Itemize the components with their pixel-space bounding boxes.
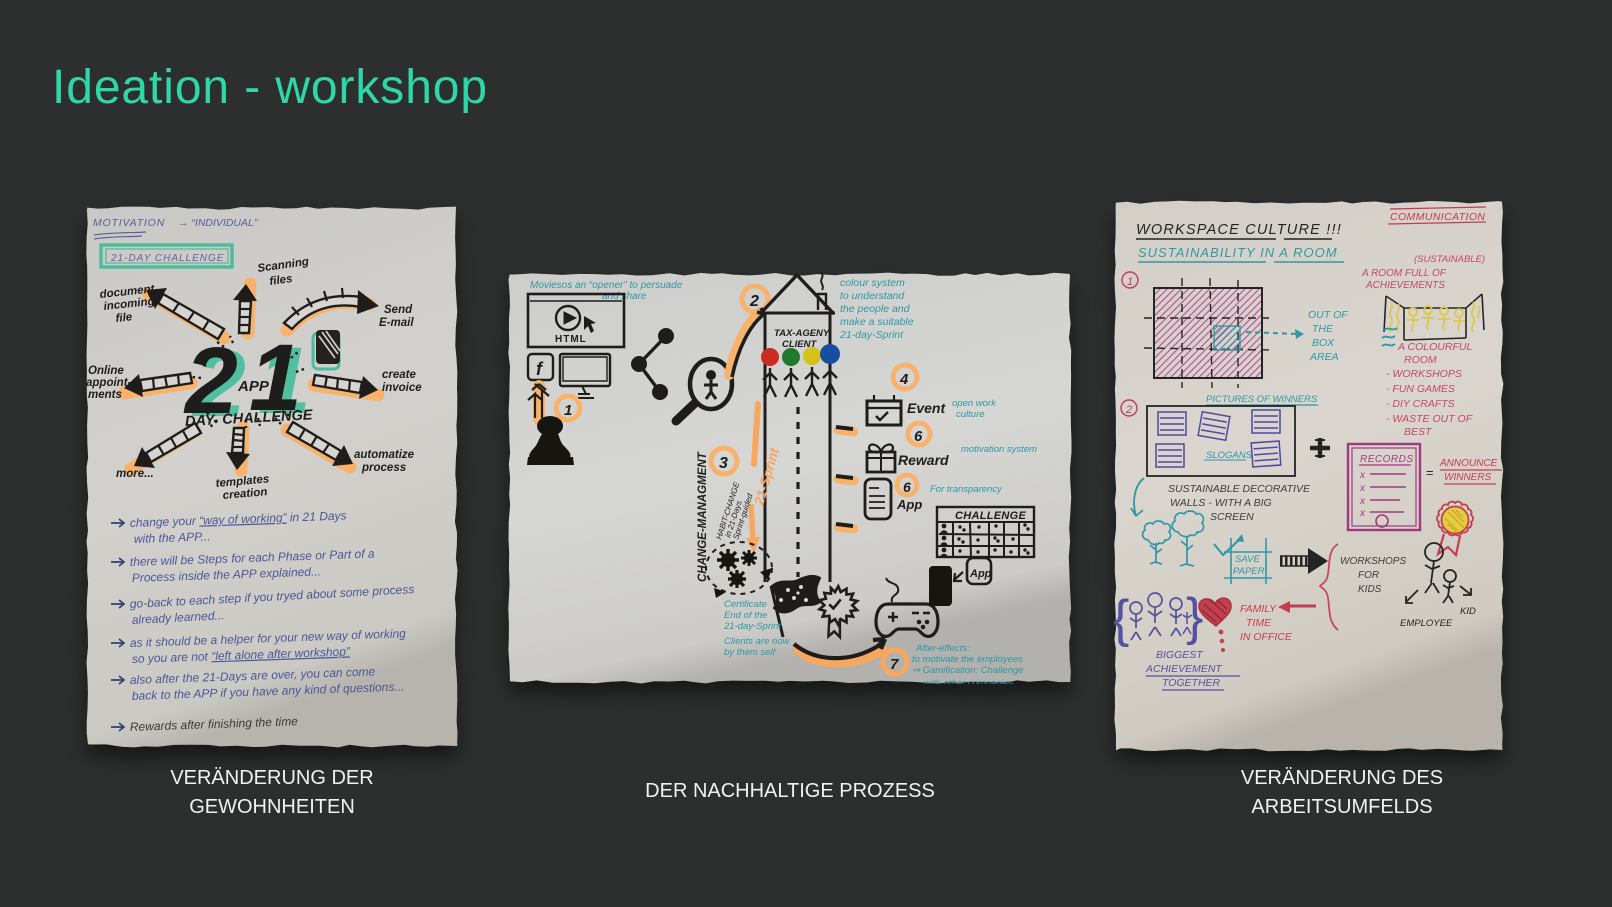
svg-text:4: 4 <box>899 371 909 388</box>
svg-text:App: App <box>896 497 922 512</box>
svg-text:Certificate: Certificate <box>724 599 767 610</box>
svg-text:For transparency: For transparency <box>930 484 1003 495</box>
svg-text:TAX-AGENY: TAX-AGENY <box>774 328 831 339</box>
svg-text:ROOM: ROOM <box>1404 354 1437 366</box>
svg-text:x: x <box>1359 508 1366 519</box>
svg-text:SCREEN: SCREEN <box>1210 511 1254 523</box>
svg-text:COMMUNICATION: COMMUNICATION <box>1390 211 1485 223</box>
svg-text:TIME: TIME <box>1246 617 1272 629</box>
svg-text:motivation system: motivation system <box>961 444 1037 455</box>
svg-text:1: 1 <box>564 402 572 419</box>
svg-text:Online: Online <box>88 365 124 377</box>
svg-text:culture: culture <box>956 409 985 420</box>
svg-text:process: process <box>361 462 406 474</box>
svg-text:file: file <box>115 311 133 325</box>
svg-text:OUT OF: OUT OF <box>1308 309 1348 321</box>
svg-text:ACHIEVEMENTS: ACHIEVEMENTS <box>1365 280 1445 291</box>
svg-text:IN OFFICE: IN OFFICE <box>1240 631 1293 643</box>
svg-text:6: 6 <box>903 479 911 495</box>
svg-text:21-day-Sprint: 21-day-Sprint <box>723 621 781 632</box>
svg-text:more...: more... <box>116 468 154 480</box>
svg-text:Event: Event <box>907 400 946 416</box>
svg-text:HTML: HTML <box>555 334 587 345</box>
svg-text:21-DAY CHALLENGE: 21-DAY CHALLENGE <box>110 253 224 264</box>
svg-text:SUSTAINABILITY IN A ROOM: SUSTAINABILITY IN A ROOM <box>1138 245 1338 260</box>
svg-text:WORKSHOPS: WORKSHOPS <box>1340 556 1406 567</box>
svg-text:Send: Send <box>384 304 413 316</box>
svg-text:21-day-Sprint: 21-day-Sprint <box>839 329 904 341</box>
svg-text:automatize: automatize <box>354 449 415 461</box>
svg-text:TOGETHER: TOGETHER <box>1162 677 1221 689</box>
svg-text:3: 3 <box>719 455 728 472</box>
svg-text:ACHIEVEMENT: ACHIEVEMENT <box>1145 663 1223 675</box>
svg-text:SAVE: SAVE <box>1235 554 1260 565</box>
svg-text:6: 6 <box>914 428 923 445</box>
svg-text:=: = <box>1426 465 1434 480</box>
svg-text:E-mail: E-mail <box>379 317 414 329</box>
svg-text:with the APP...: with the APP... <box>134 529 211 546</box>
svg-text:EMPLOYEE: EMPLOYEE <box>1400 618 1453 629</box>
svg-text:invoice: invoice <box>382 382 422 394</box>
svg-text:A COLOURFUL: A COLOURFUL <box>1397 341 1472 353</box>
svg-text:x: x <box>1359 496 1366 507</box>
svg-text:- FUN GAMES: - FUN GAMES <box>1386 383 1455 395</box>
svg-text:PICTURES OF WINNERS: PICTURES OF WINNERS <box>1206 394 1318 405</box>
svg-text:A ROOM FULL OF: A ROOM FULL OF <box>1361 268 1447 279</box>
svg-text:AREA: AREA <box>1309 351 1339 363</box>
svg-text:by them self: by them self <box>724 647 777 658</box>
svg-text:make a suitable: make a suitable <box>840 316 914 328</box>
svg-text:FAMILY: FAMILY <box>1240 603 1277 615</box>
svg-text:{: { <box>1114 590 1129 648</box>
svg-text:- WASTE OUT OF: - WASTE OUT OF <box>1386 413 1473 425</box>
svg-text:WINNERS: WINNERS <box>1444 472 1492 483</box>
svg-text:2: 2 <box>749 293 759 310</box>
svg-text:CHALLENGE: CHALLENGE <box>955 510 1027 522</box>
svg-text:Reward: Reward <box>898 452 949 468</box>
svg-text:Clients are now: Clients are now <box>724 636 791 647</box>
svg-text:RECORDS: RECORDS <box>1360 454 1414 465</box>
svg-text:(SUSTAINABLE): (SUSTAINABLE) <box>1414 254 1485 265</box>
svg-text:- WORKSHOPS: - WORKSHOPS <box>1386 368 1462 380</box>
svg-text:CHANGE-MANAGMENT: CHANGE-MANAGMENT <box>697 451 709 582</box>
svg-text:Moviesos an “opener” to persua: Moviesos an “opener” to persuade <box>530 280 683 291</box>
svg-text:MOTIVATION: MOTIVATION <box>93 217 165 229</box>
svg-text:KIDS: KIDS <box>1358 584 1382 595</box>
svg-text:to motivate the employees: to motivate the employees <box>912 654 1023 665</box>
svg-text:After-effects:: After-effects: <box>915 643 970 654</box>
svg-text:x: x <box>1359 470 1366 481</box>
svg-text:open work: open work <box>952 398 997 409</box>
svg-text:THE: THE <box>1312 323 1334 335</box>
svg-text:APP: APP <box>237 378 270 395</box>
svg-text:with other companies: with other companies <box>924 678 1014 684</box>
svg-text:PAPER: PAPER <box>1233 566 1265 577</box>
svg-text:WALLS - WITH A BIG: WALLS - WITH A BIG <box>1170 497 1272 509</box>
svg-text:1: 1 <box>1127 276 1133 288</box>
svg-text:appoint-: appoint- <box>86 377 132 389</box>
svg-text:7: 7 <box>890 656 899 673</box>
svg-text:x: x <box>1359 483 1366 494</box>
svg-text:→ “INDIVIDUAL”: → “INDIVIDUAL” <box>178 217 258 229</box>
svg-text:BOX: BOX <box>1312 337 1335 349</box>
svg-text:ANNOUNCE: ANNOUNCE <box>1439 458 1498 469</box>
svg-text:BIGGEST: BIGGEST <box>1156 649 1204 661</box>
svg-text:App: App <box>969 568 992 580</box>
svg-text:⇒ Gamification: Challenge: ⇒ Gamification: Challenge <box>912 665 1023 676</box>
svg-text:KID: KID <box>1460 606 1476 617</box>
svg-text:create: create <box>382 369 416 381</box>
svg-text:- DIY CRAFTS: - DIY CRAFTS <box>1386 398 1455 410</box>
svg-text:to understand: to understand <box>840 290 905 302</box>
svg-text:ments: ments <box>88 389 122 401</box>
svg-text:FOR: FOR <box>1358 570 1379 581</box>
svg-text:End of the: End of the <box>724 610 767 621</box>
svg-text:SLOGANS: SLOGANS <box>1206 450 1253 461</box>
svg-text:WORKSPACE CULTURE !!!: WORKSPACE CULTURE !!! <box>1136 222 1342 238</box>
svg-text:2: 2 <box>1125 404 1132 416</box>
svg-text:the people and: the people and <box>840 303 911 315</box>
svg-text:colour system: colour system <box>840 277 905 289</box>
svg-text:SUSTAINABLE DECORATIVE: SUSTAINABLE DECORATIVE <box>1168 483 1311 495</box>
svg-text:BEST: BEST <box>1404 426 1433 438</box>
